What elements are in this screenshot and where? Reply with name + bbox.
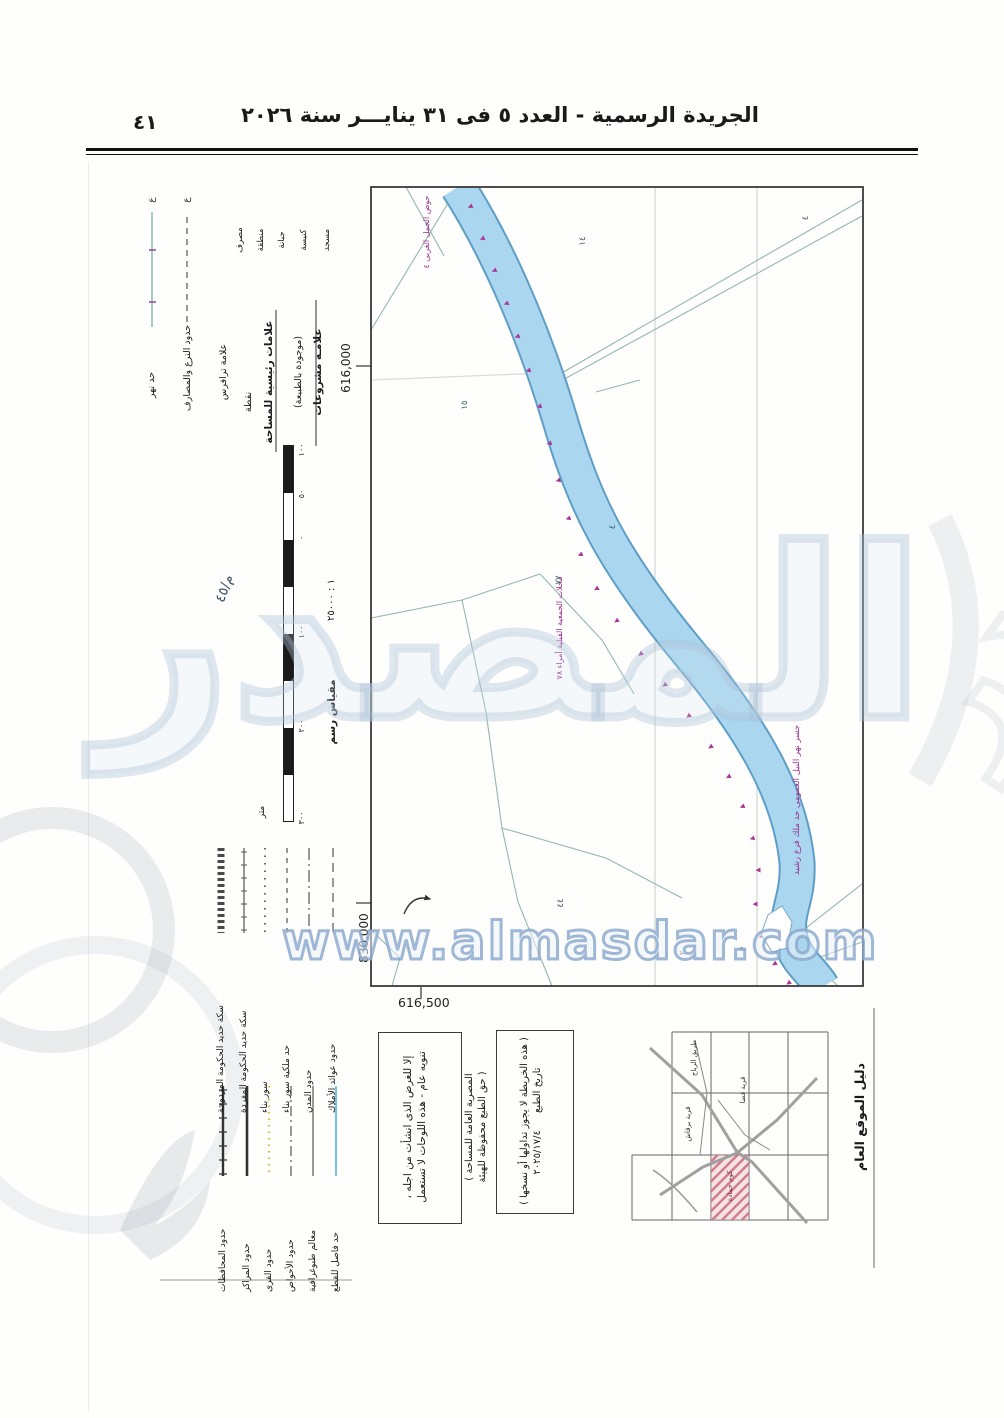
legend-traverse-label: علامة ترافرس [217, 330, 231, 414]
header-rule-thin [86, 154, 918, 155]
basin-annotation: حوض الجمل الغربى ٤ [420, 184, 434, 280]
index-village1-label: قرية قضا [736, 1070, 750, 1110]
legend-symbol-mosque: مسجد [320, 220, 334, 260]
copyright-line1: ( حق الطبع محفوظة للهيئة [476, 1037, 489, 1217]
copyright-text: المصرية العامة للمساحة ) ( حق الطبع محفو… [463, 1037, 493, 1217]
header-rule-thick [86, 148, 918, 151]
parcel-number: ٤ [799, 210, 813, 226]
legend-survey-heading: علامات رئيسية للمساحة [262, 297, 276, 467]
disclaimer-line2: إلا للغرض الذى انشأت من اجله ، [402, 1039, 416, 1215]
traverse-marker-glyph: ع [145, 192, 159, 208]
gazette-page: ٤١ الجريدة الرسمية - العدد ٥ فى ٣١ ينايـ… [0, 0, 1004, 1418]
traverse-marker-glyph-2: ع [180, 192, 194, 208]
coord-top: 616,000 [339, 328, 353, 408]
gazette-header-title: الجريدة الرسمية - العدد ٥ فى ٣١ ينايـــر… [240, 103, 760, 127]
legend-river-label: حد نهر [145, 355, 159, 415]
legend2-label: حد فاصل للقطع [329, 1182, 343, 1292]
legend-symbol-cemetery: جبانة [275, 220, 289, 260]
copyright-line2: المصرية العامة للمساحة ) [463, 1037, 476, 1217]
scale-unit: متر [255, 795, 269, 829]
legend-canals-label: حدود الترع والمصارف [181, 313, 195, 423]
disclaimer-text: إلا للغرض الذى انشأت من اجله ، تنويه عام… [402, 1039, 436, 1215]
legend-point-label: نقطة [242, 380, 256, 424]
print-date-label: تاريخ الطبع [532, 1068, 543, 1113]
print-date-text: ( هذه الخريطة لا يجوز تداولها أو نسخها )… [518, 1035, 550, 1207]
legend1-label: سور بناء [258, 943, 272, 1113]
legend-projects-heading: علامـة مشروعات [311, 297, 325, 447]
scale-tick-5: ٣٠٠ [295, 804, 309, 832]
coord-bottom: 616,500 [398, 995, 450, 1010]
index-title: دليل الموقع العام [853, 1042, 867, 1192]
disclaimer-line1: تنويه عام - هذه اللوحات لا تستعمل [416, 1039, 430, 1215]
page-number: ٤١ [133, 110, 157, 134]
page-fold-line [88, 162, 89, 1412]
print-date-value: ٢٠٢٥/١٧/٤ [532, 1130, 543, 1174]
legend2-label: حدود القرى [262, 1182, 276, 1292]
index-hatch-label: كوم حمادة [723, 1164, 737, 1208]
parcel-number: ١٥ [458, 397, 472, 413]
parcel-number: ٤٤ [554, 895, 568, 911]
legend-symbol-church: كنيسة [297, 220, 311, 260]
index-village2-label: قرية برقاش [681, 1101, 695, 1147]
watermark-url: www.almasdar.com [282, 912, 879, 972]
watermark-brand: المصدر [60, 500, 960, 773]
legend-projects-sub: (موجودة بالطبيعة) [292, 297, 306, 447]
legend1-label: سكة حديد الحكومة المفردة [237, 943, 251, 1113]
legend-symbol-drain: مصرف [233, 220, 247, 260]
print-date-line: تاريخ الطبع ٢٠٢٥/١٧/٤ [531, 1035, 544, 1207]
parcel-number: ١٤ [576, 233, 590, 249]
index-road-label: طريق الرياح [687, 1035, 701, 1081]
legend-symbol-area: منطقة [254, 220, 268, 260]
legend2-label: معالم طبوغرافية [306, 1182, 320, 1292]
legend2-label: حدود المحافظات [216, 1182, 230, 1292]
legend2-label: حدود المراكز [240, 1182, 254, 1292]
legend2-label: حدود الأحواض [284, 1182, 298, 1292]
print-restriction: ( هذه الخريطة لا يجوز تداولها أو نسخها ) [518, 1035, 531, 1207]
legend1-label: سكة حديد الحكومة المزدوجة [214, 943, 228, 1113]
